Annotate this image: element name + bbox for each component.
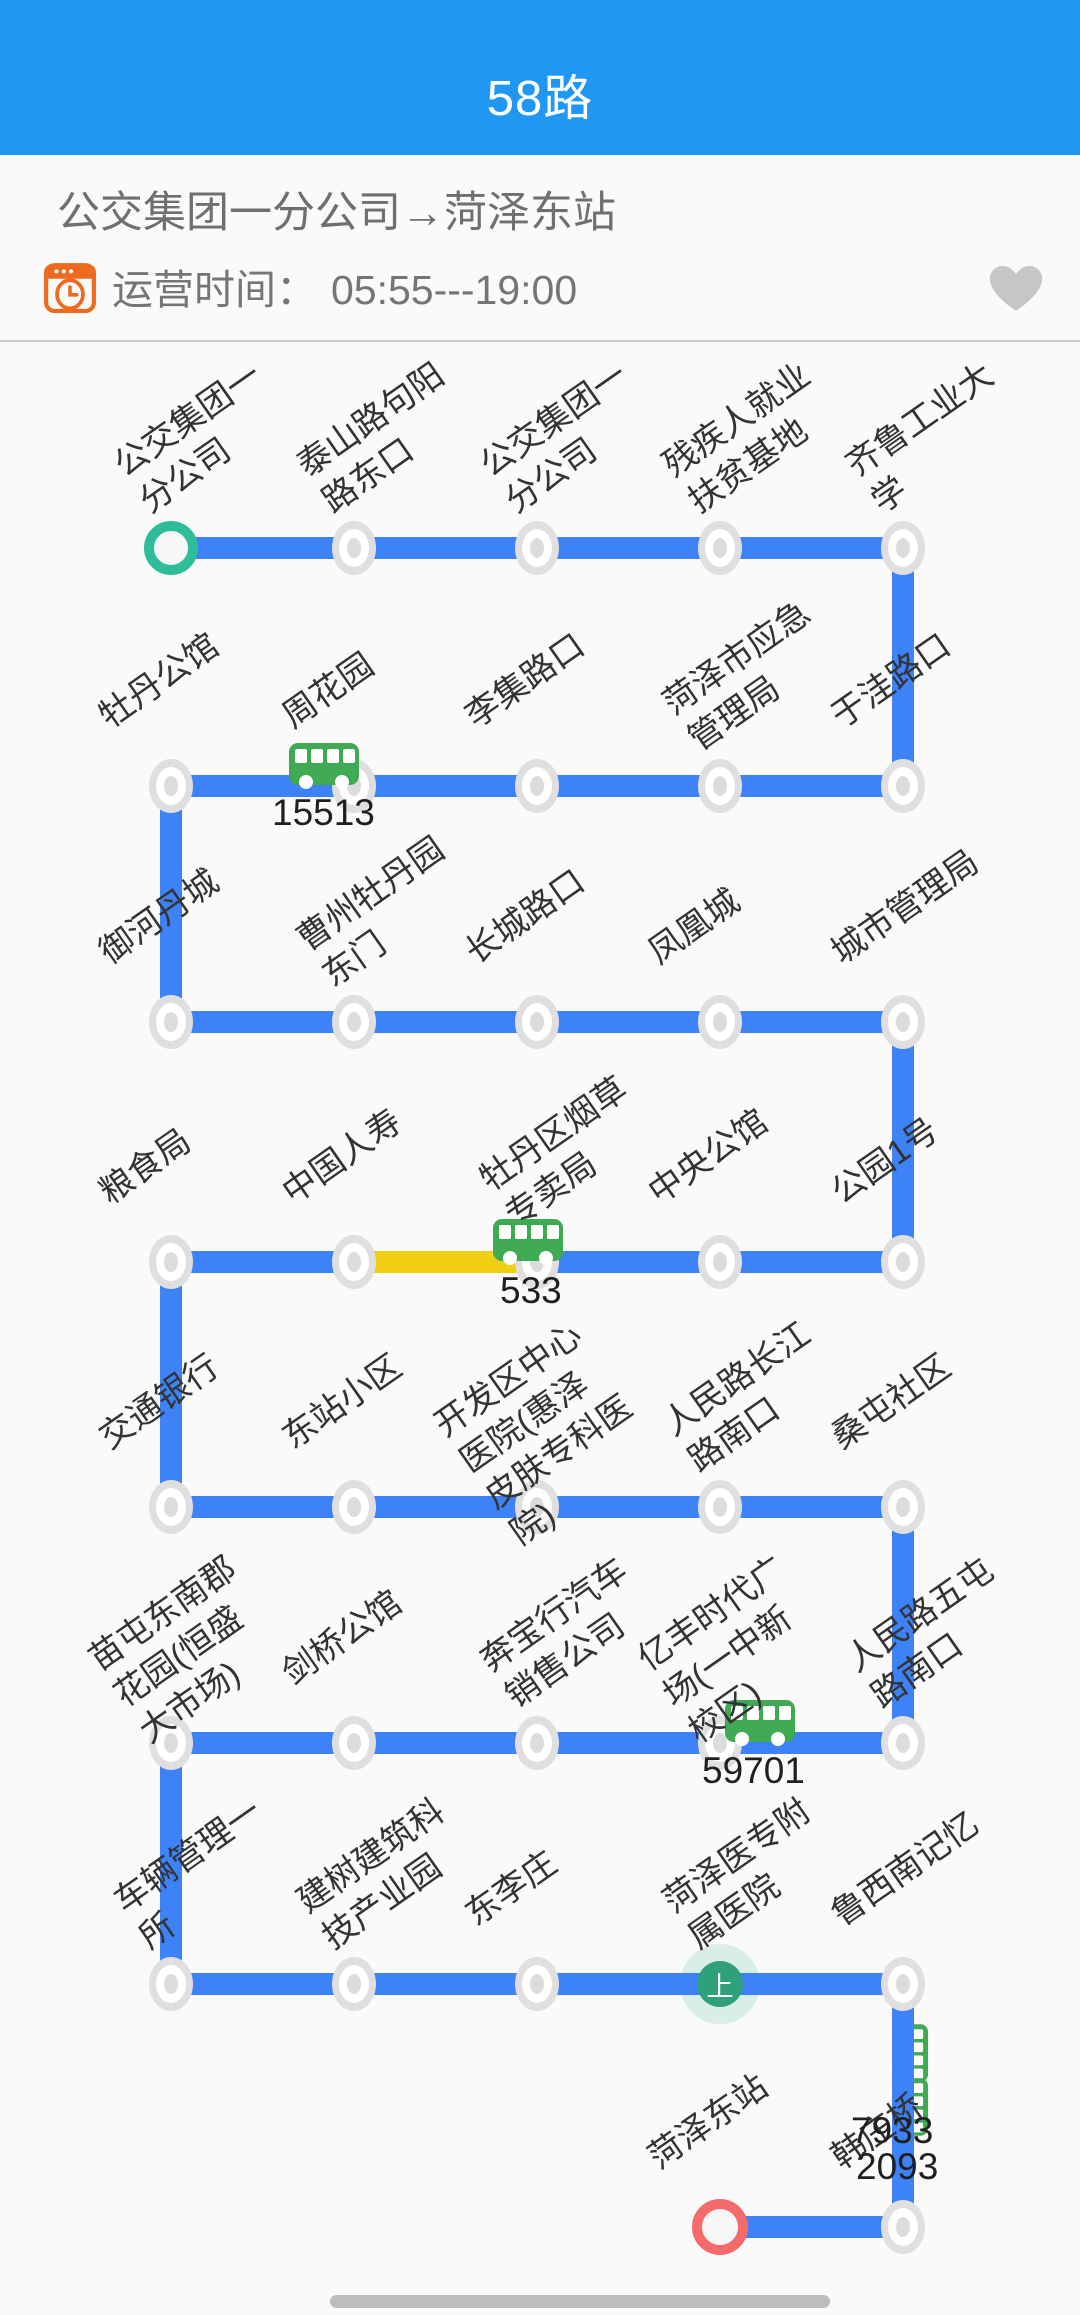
station-label: 公交集团一 分公司 — [106, 353, 296, 523]
station-dot-ring — [347, 538, 361, 558]
station-label: 齐鲁工业大 学 — [838, 353, 1028, 523]
station-label: 车辆管理一 所 — [106, 1789, 296, 1959]
station-dot-ring — [347, 1252, 361, 1272]
operating-time-value: 05:55---19:00 — [331, 267, 577, 313]
station-dot[interactable] — [332, 1716, 376, 1770]
station-label: 人民路五屯 路南口 — [838, 1548, 1028, 1718]
station-dot[interactable] — [698, 521, 742, 575]
station-dot-ring — [896, 776, 910, 796]
route-direction-title: 公交集团一分公司→菏泽东站 — [57, 178, 616, 240]
station-dot-ring — [713, 1497, 727, 1517]
station-label: 周花园 — [274, 643, 383, 738]
station-dot-ring — [896, 1974, 910, 1994]
station-dot-ring — [164, 1012, 178, 1032]
station-dot-ring — [164, 776, 178, 796]
operating-time-row: 运营时间：05:55---19:00 — [44, 256, 577, 316]
station-label: 中央公馆 — [640, 1100, 777, 1214]
station-dot-ring — [896, 1012, 910, 1032]
station-label: 牡丹区烟草 专卖局 — [472, 1067, 662, 1237]
station-dot-ring — [347, 1974, 361, 1994]
station-dot-ring — [713, 1252, 727, 1272]
station-label: 凤凰城 — [640, 879, 749, 974]
station-dot-ring — [896, 538, 910, 558]
station-dot[interactable] — [515, 1957, 559, 2011]
station-label: 苗屯东南郡 花园(恒盛 大市场) — [80, 1547, 295, 1753]
station-label: 城市管理局 — [823, 840, 987, 974]
station-dot[interactable] — [515, 1716, 559, 1770]
page-title: 58路 — [487, 59, 594, 130]
station-dot[interactable] — [881, 1957, 925, 2011]
station-label: 残疾人就业 扶贫基地 — [655, 353, 845, 523]
station-label: 建树建筑科 技产业园 — [289, 1789, 479, 1959]
station-dot[interactable] — [332, 521, 376, 575]
station-dot[interactable] — [515, 759, 559, 813]
station-dot[interactable] — [332, 1480, 376, 1534]
station-label: 剑桥公馆 — [274, 1581, 411, 1695]
start-station-dot[interactable] — [144, 521, 198, 575]
bus-plate-label: 2093 — [856, 2146, 938, 2188]
station-label: 菏泽东站 — [640, 2065, 777, 2179]
station-label: 中国人寿 — [274, 1100, 411, 1214]
station-dot[interactable] — [515, 521, 559, 575]
station-dot[interactable] — [881, 759, 925, 813]
station-dot-ring — [530, 1733, 544, 1753]
station-dot-ring — [896, 2217, 910, 2237]
station-dot[interactable] — [881, 1716, 925, 1770]
station-label: 粮食局 — [91, 1119, 200, 1214]
station-dot-ring — [530, 1012, 544, 1032]
station-label: 亿丰时代广 场(一中新 校区) — [629, 1547, 844, 1753]
station-dot[interactable] — [698, 759, 742, 813]
station-label: 泰山路句阳 路东口 — [289, 353, 479, 523]
station-dot[interactable] — [698, 995, 742, 1049]
station-dot[interactable] — [149, 1480, 193, 1534]
board-marker-text: 上 — [707, 1965, 734, 2004]
station-label: 鲁西南记忆 — [823, 1802, 987, 1936]
operating-time-label: 运营时间： — [112, 267, 317, 313]
station-dot-ring — [713, 776, 727, 796]
favorite-heart-icon[interactable] — [982, 254, 1050, 318]
station-label: 东站小区 — [274, 1345, 411, 1459]
station-label: 曹州牡丹园 东门 — [289, 827, 479, 997]
station-dot[interactable] — [881, 1480, 925, 1534]
station-dot-ring — [530, 1974, 544, 1994]
station-dot-ring — [713, 538, 727, 558]
operating-time-text: 运营时间：05:55---19:00 — [112, 256, 577, 316]
station-dot-ring — [896, 1733, 910, 1753]
station-dot-ring — [347, 1733, 361, 1753]
station-label: 菏泽市应急 管理局 — [655, 591, 845, 761]
station-dot[interactable] — [149, 759, 193, 813]
clock-calendar-icon — [44, 259, 96, 313]
route-map: 155135335970179332093公交集团一 分公司泰山路句阳 路东口公… — [0, 342, 1080, 2315]
station-dot-ring — [347, 1012, 361, 1032]
station-dot-ring — [164, 1252, 178, 1272]
station-dot[interactable] — [881, 1235, 925, 1289]
station-label: 开发区中心 医院(惠泽 皮肤专科医 院) — [426, 1313, 666, 1555]
station-dot[interactable] — [149, 995, 193, 1049]
station-dot[interactable] — [881, 521, 925, 575]
station-dot-ring — [713, 1012, 727, 1032]
station-label: 公交集团一 分公司 — [472, 353, 662, 523]
station-label: 公园1号 — [823, 1109, 947, 1214]
station-dot[interactable] — [332, 995, 376, 1049]
station-dot[interactable] — [149, 1235, 193, 1289]
station-label: 长城路口 — [457, 860, 594, 974]
station-label: 奔宝行汽车 销售公司 — [472, 1548, 662, 1718]
station-dot[interactable] — [332, 1957, 376, 2011]
end-station-dot[interactable] — [692, 2199, 748, 2255]
station-dot[interactable] — [881, 995, 925, 1049]
station-dot-ring — [164, 1974, 178, 1994]
station-dot-ring — [896, 1252, 910, 1272]
boarding-station-dot[interactable]: 上 — [697, 1961, 743, 2007]
station-dot-ring — [347, 1497, 361, 1517]
station-dot-ring — [530, 538, 544, 558]
station-dot-ring — [896, 1497, 910, 1517]
station-dot[interactable] — [698, 1235, 742, 1289]
station-label: 菏泽医专附 属医院 — [655, 1789, 845, 1959]
bus-plate-label: 59701 — [702, 1750, 805, 1792]
station-dot-ring — [164, 1497, 178, 1517]
station-label: 人民路长江 路南口 — [655, 1312, 845, 1482]
bus-icon — [288, 738, 360, 792]
station-dot[interactable] — [698, 1480, 742, 1534]
home-indicator-bar[interactable] — [330, 2295, 830, 2308]
bus-plate-label: 15513 — [272, 792, 375, 834]
station-label: 桑屯社区 — [823, 1345, 960, 1459]
station-dot[interactable] — [332, 1235, 376, 1289]
station-dot[interactable] — [149, 1957, 193, 2011]
station-label: 李集路口 — [457, 624, 594, 738]
app-header: 58路 — [0, 0, 1080, 155]
station-dot[interactable] — [881, 2200, 925, 2254]
bus-plate-label: 533 — [500, 1270, 562, 1312]
station-label: 牡丹公馆 — [91, 624, 228, 738]
station-dot[interactable] — [515, 995, 559, 1049]
station-dot-ring — [530, 776, 544, 796]
